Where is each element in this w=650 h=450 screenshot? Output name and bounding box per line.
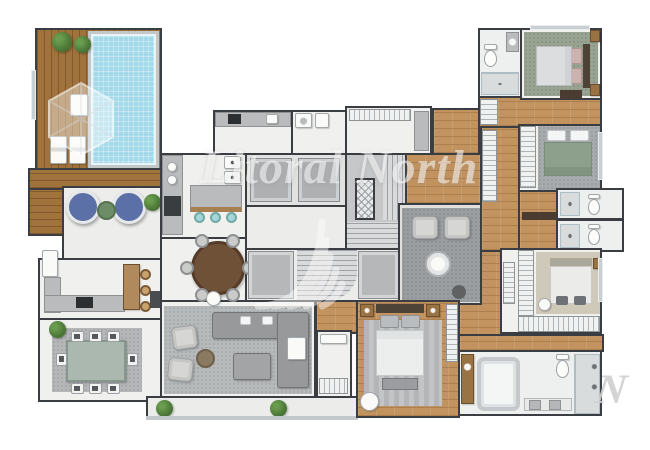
vanity — [461, 354, 474, 404]
pillow — [571, 68, 582, 84]
chair — [107, 331, 120, 342]
plant-icon — [49, 321, 66, 338]
chair — [107, 383, 120, 394]
wardrobe-icon — [518, 250, 534, 316]
round-chair — [360, 392, 379, 411]
watermark-logo — [250, 210, 400, 315]
chair — [180, 261, 194, 275]
bed-bench — [382, 378, 418, 390]
bathtub-icon — [477, 357, 520, 411]
round-table-icon — [425, 251, 451, 277]
bar-cart — [287, 337, 306, 360]
chair — [195, 234, 209, 248]
counter — [215, 112, 291, 127]
bed-icon — [550, 258, 592, 312]
pouf — [452, 285, 466, 299]
toilet-icon — [588, 229, 600, 245]
sink-icon — [266, 114, 278, 124]
pillow — [570, 130, 589, 141]
hall-wood — [518, 190, 558, 252]
armchair-icon — [171, 324, 199, 350]
sink-icon — [167, 162, 177, 172]
bed-icon — [544, 128, 592, 176]
balcony-railing — [146, 416, 358, 420]
armchair-icon — [412, 216, 438, 239]
sink-icon — [529, 400, 541, 410]
chair — [127, 353, 138, 366]
watermark-corner-letter: N — [593, 366, 630, 414]
laundry-sink — [315, 113, 329, 128]
cooktop-icon — [76, 297, 93, 308]
window-icon — [530, 25, 590, 30]
chair — [226, 288, 240, 302]
floor-plan-render: Litoral North N — [0, 0, 650, 450]
stool-icon — [210, 212, 221, 223]
round-table-icon — [97, 201, 116, 220]
stool-icon — [226, 212, 237, 223]
armchair-icon — [167, 357, 194, 382]
window-icon — [31, 70, 36, 120]
oven-icon — [164, 196, 181, 216]
bed-icon — [536, 44, 590, 88]
chair — [56, 353, 67, 366]
nightstand — [426, 304, 440, 317]
pouf — [196, 349, 215, 368]
plant-icon — [156, 400, 173, 417]
pillow — [262, 316, 273, 325]
egg-chair-icon — [112, 190, 146, 224]
nightstand — [590, 84, 600, 96]
wall-divider — [556, 218, 624, 221]
headboard — [550, 258, 592, 266]
pillow — [547, 130, 566, 141]
pillow — [571, 48, 582, 64]
refrigerator-icon — [42, 250, 58, 277]
plant-icon — [52, 32, 72, 52]
sink-icon — [549, 400, 561, 410]
toilet-icon — [556, 360, 569, 378]
wardrobe-icon — [518, 316, 600, 332]
shower-icon — [481, 72, 519, 95]
duvet — [536, 46, 572, 86]
sink-icon — [506, 32, 519, 52]
chair — [89, 331, 102, 342]
washer-icon — [295, 113, 312, 128]
armchair-icon — [444, 216, 470, 239]
cooktop-icon — [228, 114, 241, 124]
plant-icon — [74, 36, 91, 53]
toilet-icon — [588, 199, 600, 215]
watermark-text: Litoral North — [200, 140, 478, 195]
wardrobe-icon — [480, 99, 498, 125]
chair — [226, 234, 240, 248]
wardrobe-icon — [520, 126, 536, 188]
window-icon — [598, 132, 603, 180]
shower-icon — [560, 224, 580, 248]
chair — [71, 331, 84, 342]
egg-chair-icon — [66, 190, 100, 224]
wardrobe-icon — [446, 304, 458, 362]
round-table-icon — [191, 241, 245, 295]
plant-icon — [270, 400, 287, 417]
wardrobe-icon — [349, 109, 411, 121]
stool-icon — [140, 269, 151, 280]
dining-table-icon — [66, 340, 126, 382]
sink-icon — [167, 175, 177, 185]
toilet-icon — [484, 50, 497, 67]
round-chair — [538, 298, 551, 311]
plant-icon — [144, 194, 161, 211]
pillow — [401, 315, 420, 328]
nightstand — [590, 30, 600, 42]
pillow — [556, 296, 568, 305]
floor-hatch — [319, 378, 348, 394]
sofa-ottoman — [233, 353, 271, 380]
console-shelf — [522, 212, 556, 220]
pillow — [574, 296, 586, 305]
chair — [89, 383, 102, 394]
room-deck-left — [28, 188, 64, 236]
dresser — [560, 90, 582, 99]
headboard — [583, 44, 590, 88]
duvet — [544, 142, 592, 176]
side-table — [206, 291, 221, 306]
shelving — [503, 262, 515, 304]
chair — [71, 383, 84, 394]
bar-counter — [123, 264, 140, 310]
window-icon — [598, 258, 603, 302]
wardrobe-icon — [482, 130, 497, 202]
parasol-icon — [42, 80, 120, 158]
pillow — [240, 316, 251, 325]
tv-console — [150, 291, 160, 308]
shelf — [320, 334, 347, 344]
shower-icon — [560, 192, 580, 216]
duvet — [376, 330, 424, 376]
stool-icon — [194, 212, 205, 223]
pillow — [380, 315, 399, 328]
